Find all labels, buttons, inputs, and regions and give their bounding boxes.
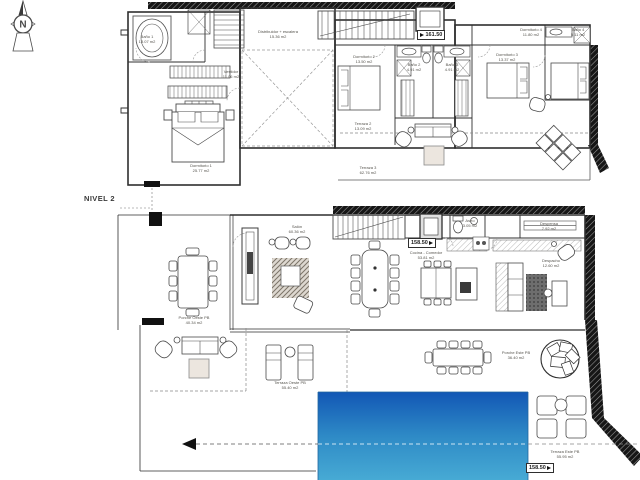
retaining-wall-top — [333, 206, 585, 214]
room-label: Porche Este PB 36.40 m2 — [502, 350, 530, 360]
bed — [487, 63, 589, 113]
room-label: Cocina - Comedor 53.81 m2 — [410, 250, 442, 260]
room-label: Baño 2 4.91 m2 — [407, 62, 421, 72]
room-label: Despensa 7.92 m2 — [540, 221, 558, 231]
secondary-stair — [188, 10, 244, 48]
elevator — [420, 214, 442, 239]
room-label: Aseo 3.05 m2 — [463, 218, 477, 228]
sun-loungers-east — [537, 396, 586, 438]
floor-plan-drawing: N — [0, 0, 640, 480]
wall-column — [142, 318, 164, 325]
room-label: Vestidor 11.06 m2 — [223, 69, 239, 79]
swimming-pool — [318, 392, 528, 480]
room-label: Dormitorio 1 25.77 m2 — [190, 163, 212, 173]
room-label: Dormitorio 3 13.37 m2 — [496, 52, 518, 62]
retaining-wall-right — [585, 215, 595, 320]
fireplace-wall — [242, 228, 258, 304]
room-label: Terraza 2 13.09 m2 — [355, 121, 372, 131]
sun-loungers — [266, 345, 313, 380]
round-daybed — [541, 340, 580, 378]
room-label: Porche Oeste PB 40.34 m2 — [179, 315, 210, 325]
stairs — [333, 215, 405, 239]
level-arrow-icon — [420, 33, 424, 37]
outdoor-dining-east — [425, 341, 491, 374]
pool-area — [182, 340, 638, 480]
room-label: Baño 1 13.07 m2 — [139, 34, 156, 44]
wall-column — [144, 181, 160, 187]
room-label: Terraza Este PB 55.95 m2 — [551, 449, 580, 459]
overhang-dashed — [150, 328, 347, 392]
bed — [338, 66, 380, 110]
porch-dining-table — [169, 248, 217, 316]
master-bed — [164, 104, 234, 162]
compass-icon: N — [11, 1, 35, 51]
room-label: Distribuidor + escalera 15.36 m2 — [258, 29, 298, 39]
wardrobe — [168, 66, 230, 110]
room-label: Salón 60.36 m2 — [289, 224, 306, 234]
bathroom-fixtures — [397, 46, 470, 116]
floor-plan-canvas: N — [0, 0, 640, 480]
void-over-living-room — [242, 50, 333, 146]
room-label: Baño 4 5.11 m2 — [571, 27, 585, 37]
elevation-marker: 158.50 — [408, 238, 436, 248]
level-label: NIVEL 2 — [84, 194, 115, 203]
outdoor-lounge-set — [153, 337, 240, 378]
level-arrow-icon — [547, 466, 551, 470]
dining-table — [351, 241, 399, 317]
room-label: Terraza 3 62.76 m2 — [360, 165, 377, 175]
elevation-marker: 161.50 — [417, 30, 445, 40]
retaining-wall-right — [590, 45, 598, 145]
level-arrow-icon — [429, 241, 433, 245]
room-label: Baño 3 4.91 m2 — [445, 62, 459, 72]
kitchen-island — [421, 261, 477, 305]
stairs — [318, 11, 414, 39]
living-room-furniture — [269, 237, 314, 314]
compass-letter: N — [19, 20, 26, 31]
room-label: Terraza Oeste PB 55.40 m2 — [274, 380, 306, 390]
wall-column — [149, 212, 162, 226]
elevation-marker: 158.50 — [526, 463, 554, 473]
elevator — [416, 7, 444, 31]
room-label: Dormitorio 2 13.50 m2 — [353, 54, 375, 64]
outdoor-sofa-set — [393, 124, 469, 165]
room-label: Despacho 12.60 m2 — [542, 258, 560, 268]
office-furniture — [496, 242, 577, 312]
room-label: Dormitorio 4 11.80 m2 — [520, 27, 542, 37]
datum-arrow — [182, 438, 196, 450]
